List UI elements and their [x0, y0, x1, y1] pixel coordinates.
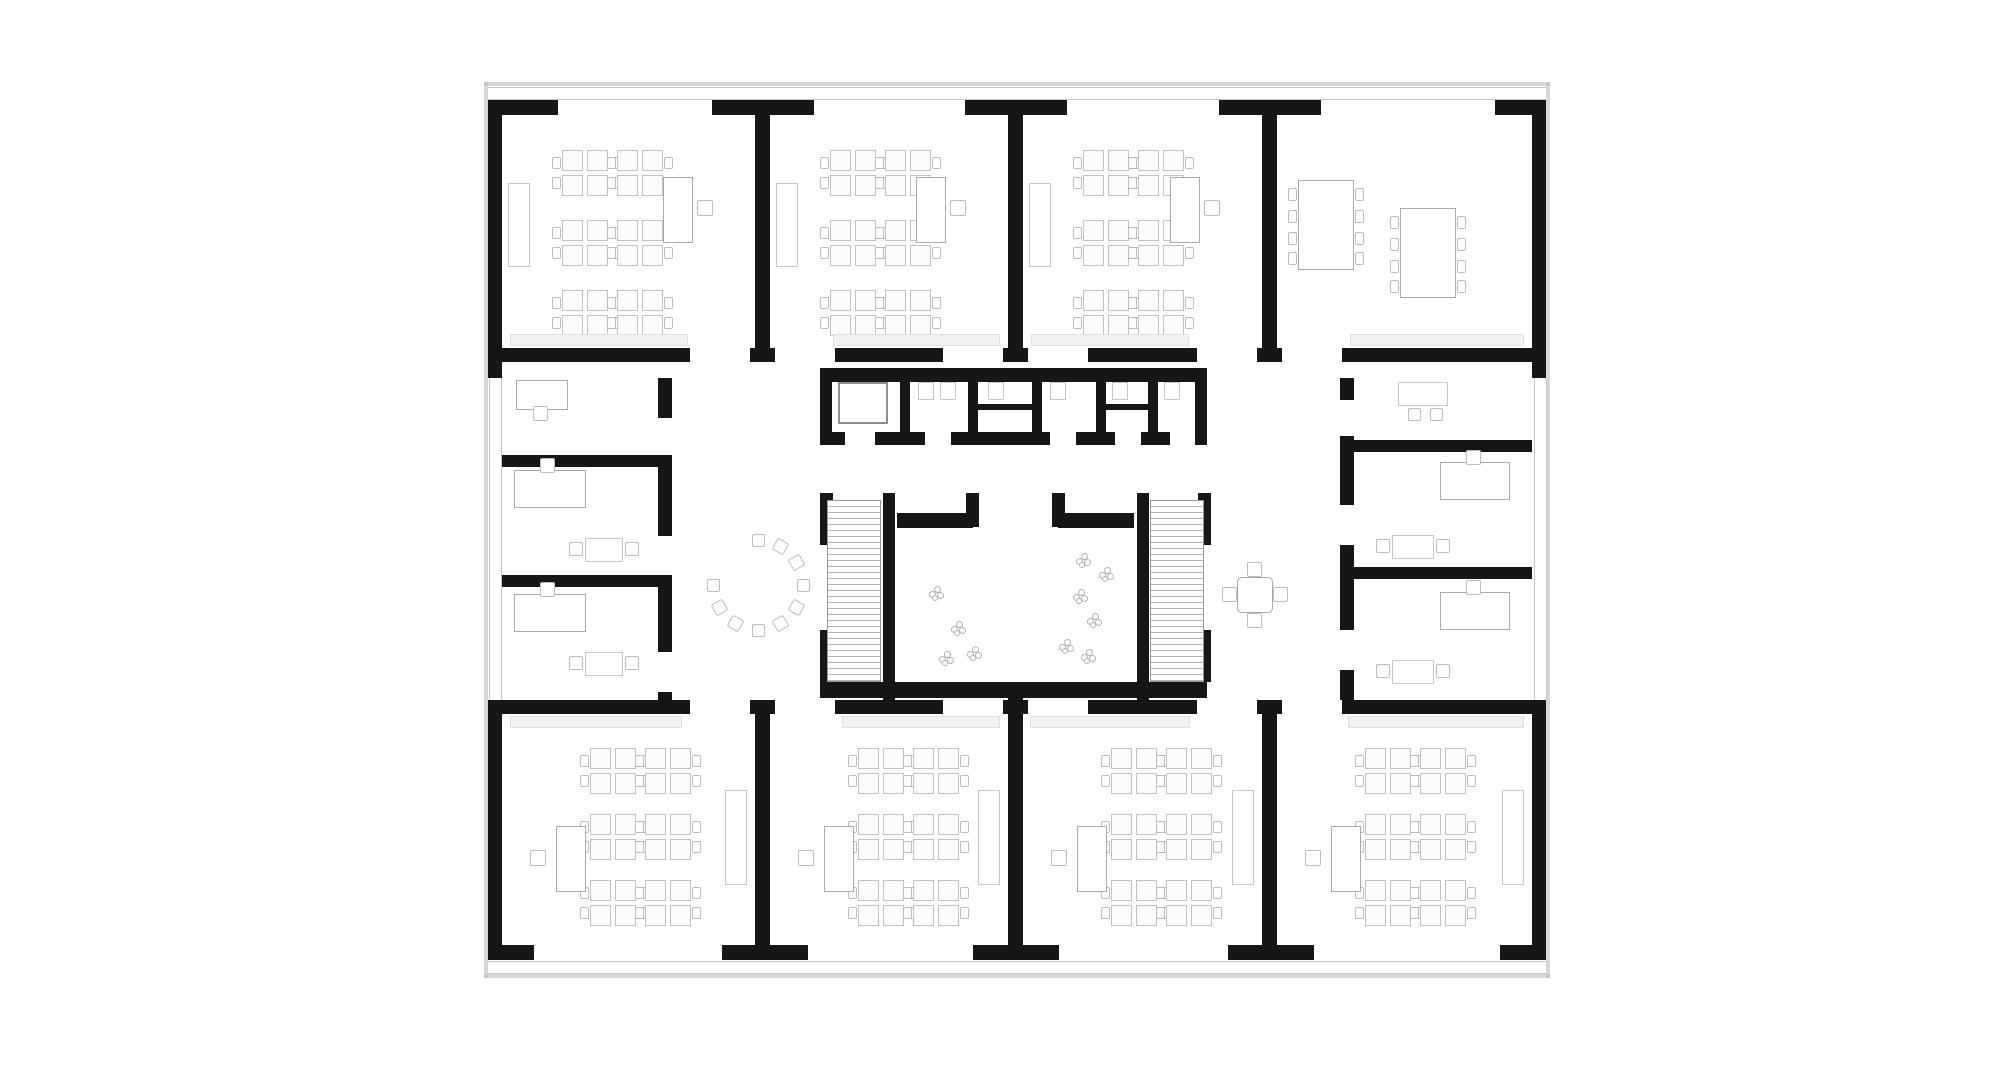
desk	[830, 175, 851, 196]
meeting-table	[585, 538, 623, 562]
desk	[855, 220, 876, 241]
arc-chair	[752, 624, 765, 637]
wall	[1003, 348, 1028, 362]
desk	[1420, 880, 1441, 901]
wall	[883, 493, 895, 700]
cabinet	[725, 790, 747, 885]
wall	[875, 432, 925, 445]
desk-cluster	[590, 748, 636, 794]
desk	[562, 150, 583, 171]
chair	[1467, 841, 1476, 853]
chair	[903, 841, 912, 853]
desk	[910, 315, 931, 336]
wall	[1096, 368, 1106, 432]
desk	[1111, 839, 1132, 860]
desk	[1108, 150, 1129, 171]
desk	[1163, 315, 1184, 336]
desk	[615, 748, 636, 769]
plant-leaf	[1067, 645, 1074, 652]
wall	[750, 348, 775, 362]
chair	[1185, 317, 1194, 329]
desk	[1083, 220, 1104, 241]
desk-cluster	[1083, 150, 1129, 196]
wall	[1262, 100, 1277, 362]
chair	[960, 775, 969, 787]
desk	[590, 748, 611, 769]
arc-chair	[788, 554, 806, 572]
chair	[1467, 887, 1476, 899]
cabinet	[1502, 790, 1524, 885]
arc-chair	[772, 537, 790, 555]
desk	[1136, 814, 1157, 835]
cabinet	[978, 790, 1000, 885]
staff-table	[1288, 180, 1364, 270]
desk	[642, 175, 663, 196]
desk-cluster	[562, 290, 608, 336]
chair	[1073, 157, 1082, 169]
teacher-desk	[1331, 826, 1361, 892]
desk	[645, 773, 666, 794]
desk	[615, 839, 636, 860]
desk	[1191, 748, 1212, 769]
desk	[1390, 748, 1411, 769]
desk	[1138, 175, 1159, 196]
chair	[580, 775, 589, 787]
wall	[1148, 368, 1158, 432]
desk	[830, 245, 851, 266]
desk	[883, 880, 904, 901]
desk	[587, 150, 608, 171]
desk	[645, 748, 666, 769]
desk	[1365, 814, 1386, 835]
desk	[1083, 315, 1104, 336]
desk	[670, 905, 691, 926]
chair	[607, 297, 616, 309]
plant-leaf	[1095, 619, 1102, 626]
desk	[883, 814, 904, 835]
wall	[722, 945, 808, 960]
chair	[960, 907, 969, 919]
chair	[848, 775, 857, 787]
chair	[1467, 821, 1476, 833]
arc-chair	[707, 579, 720, 592]
chair	[552, 177, 561, 189]
chair	[1156, 907, 1165, 919]
chair	[1410, 907, 1419, 919]
desk-cluster	[617, 290, 663, 336]
desk	[1083, 245, 1104, 266]
chair	[820, 247, 829, 259]
desk	[1166, 814, 1187, 835]
wall	[1342, 348, 1532, 362]
desk	[1365, 905, 1386, 926]
desk	[1108, 290, 1129, 311]
chair	[1073, 297, 1082, 309]
office-desk	[514, 594, 586, 632]
cabinet	[1029, 183, 1051, 267]
desk	[1108, 175, 1129, 196]
plant-leaf	[947, 657, 954, 664]
plan-shadow	[484, 82, 1550, 86]
teacher-desk	[556, 826, 586, 892]
plant-leaf	[1081, 595, 1088, 602]
desk	[885, 150, 906, 171]
desk-cluster	[858, 880, 904, 926]
chair	[697, 200, 713, 216]
chair	[692, 887, 701, 899]
desk	[938, 839, 959, 860]
desk-cluster	[830, 220, 876, 266]
wall	[1088, 348, 1197, 362]
wall	[1342, 700, 1532, 714]
desk	[617, 150, 638, 171]
desk	[670, 814, 691, 835]
wall	[750, 700, 775, 714]
desk	[855, 150, 876, 171]
plant	[1086, 612, 1102, 628]
wall	[978, 404, 1032, 410]
desk	[1390, 773, 1411, 794]
chair	[580, 907, 589, 919]
desk-cluster	[1166, 814, 1212, 860]
staff-table	[1390, 208, 1466, 298]
chair	[1467, 907, 1476, 919]
arc-chair	[752, 534, 765, 547]
desk	[938, 748, 959, 769]
desk	[1365, 839, 1386, 860]
chair	[820, 177, 829, 189]
chair	[1410, 841, 1419, 853]
wall	[1340, 670, 1354, 700]
chair	[692, 907, 701, 919]
wall	[1088, 700, 1197, 714]
desk	[913, 905, 934, 926]
chair	[820, 297, 829, 309]
desk	[1136, 773, 1157, 794]
chair	[1466, 450, 1481, 465]
chair	[1410, 821, 1419, 833]
plant	[1075, 552, 1091, 568]
chair	[607, 247, 616, 259]
chair	[960, 755, 969, 767]
desk	[645, 814, 666, 835]
chair	[903, 887, 912, 899]
desk	[1390, 814, 1411, 835]
chair	[1390, 216, 1399, 229]
window-sill	[833, 334, 1000, 346]
chair	[1101, 775, 1110, 787]
chair	[1073, 227, 1082, 239]
chair	[1376, 539, 1390, 553]
chair	[1204, 200, 1220, 216]
chair	[960, 821, 969, 833]
desk	[885, 315, 906, 336]
desk-cluster	[645, 748, 691, 794]
window-strip	[1534, 378, 1547, 700]
plant-leaf	[1079, 562, 1085, 568]
wall	[502, 455, 672, 467]
desk-cluster	[645, 880, 691, 926]
desk	[1420, 839, 1441, 860]
chair	[1355, 907, 1364, 919]
chair	[903, 907, 912, 919]
chair	[635, 755, 644, 767]
wall	[968, 368, 978, 432]
desk	[1420, 773, 1441, 794]
office-desk	[1440, 462, 1510, 500]
wall	[502, 575, 672, 587]
chair	[1410, 887, 1419, 899]
staircase	[1150, 500, 1204, 682]
chair	[903, 821, 912, 833]
chair	[1355, 775, 1364, 787]
desk	[1083, 150, 1104, 171]
chair	[1156, 755, 1165, 767]
desk	[587, 175, 608, 196]
wall	[658, 458, 672, 536]
desk	[885, 290, 906, 311]
wall	[658, 576, 672, 652]
desk-cluster	[885, 290, 931, 336]
chair	[569, 656, 583, 670]
wall	[502, 700, 690, 714]
desk	[1136, 839, 1157, 860]
arc-chair	[727, 615, 745, 633]
wall	[1137, 493, 1149, 700]
plant-leaf	[954, 630, 960, 636]
chair	[875, 317, 884, 329]
wall	[1008, 682, 1023, 714]
wall	[1058, 513, 1134, 528]
meeting-table	[1398, 382, 1448, 406]
chair	[1436, 539, 1450, 553]
chair	[1213, 841, 1222, 853]
chair	[1436, 664, 1450, 678]
desk	[645, 905, 666, 926]
plant-leaf	[932, 595, 938, 601]
chair	[540, 458, 555, 473]
desk	[830, 150, 851, 171]
chair	[1288, 252, 1297, 265]
desk	[615, 814, 636, 835]
desk	[562, 290, 583, 311]
desk	[590, 905, 611, 926]
desk	[617, 175, 638, 196]
teacher-desk	[663, 177, 693, 243]
chair	[533, 406, 548, 421]
chair	[625, 656, 639, 670]
desk	[1191, 880, 1212, 901]
chair	[1457, 238, 1466, 251]
chair	[530, 850, 546, 866]
chair	[875, 177, 884, 189]
chair	[692, 775, 701, 787]
chair	[1156, 841, 1165, 853]
desk	[670, 773, 691, 794]
desk	[590, 880, 611, 901]
chair	[820, 157, 829, 169]
desk	[1166, 748, 1187, 769]
chair	[664, 157, 673, 169]
desk	[855, 315, 876, 336]
wall	[488, 700, 502, 960]
desk	[645, 880, 666, 901]
wall	[835, 348, 943, 362]
desk	[910, 290, 931, 311]
desk-cluster	[562, 220, 608, 266]
chair	[569, 542, 583, 556]
wall	[1340, 567, 1532, 579]
window-strip	[488, 87, 1546, 100]
desk	[858, 773, 879, 794]
desk	[1191, 773, 1212, 794]
wall	[1340, 545, 1354, 630]
chair	[692, 821, 701, 833]
chair	[1156, 775, 1165, 787]
desk	[1136, 748, 1157, 769]
chair	[1410, 775, 1419, 787]
desk-cluster	[858, 748, 904, 794]
chair	[552, 247, 561, 259]
desk	[858, 905, 879, 926]
desk-cluster	[830, 290, 876, 336]
desk-cluster	[617, 150, 663, 196]
chair	[552, 317, 561, 329]
desk	[1420, 905, 1441, 926]
chair	[1185, 247, 1194, 259]
plant	[950, 620, 966, 636]
chair	[607, 317, 616, 329]
desk	[938, 880, 959, 901]
desk-cluster	[913, 880, 959, 926]
desk	[1166, 773, 1187, 794]
desk	[645, 839, 666, 860]
desk	[642, 150, 663, 171]
chair	[1073, 247, 1082, 259]
plant-leaf	[1062, 648, 1068, 654]
chair	[798, 850, 814, 866]
chair	[1101, 907, 1110, 919]
desk-cluster	[1420, 880, 1466, 926]
table	[1237, 577, 1273, 613]
arc-chair	[788, 599, 806, 617]
desk	[1138, 150, 1159, 171]
chair	[1247, 562, 1262, 577]
wc-fixture	[940, 382, 956, 400]
wc-fixture	[988, 382, 1004, 400]
desk	[1420, 814, 1441, 835]
plant-leaf	[937, 592, 944, 599]
chair	[875, 297, 884, 309]
chair	[932, 247, 941, 259]
wall	[1532, 700, 1546, 960]
wall	[1532, 100, 1546, 378]
wall	[1340, 378, 1354, 400]
chair	[552, 157, 561, 169]
chair	[540, 582, 555, 597]
desk	[1166, 880, 1187, 901]
plant-leaf	[942, 660, 948, 666]
chair	[664, 317, 673, 329]
chair	[875, 227, 884, 239]
desk	[1111, 880, 1132, 901]
desk	[587, 245, 608, 266]
desk	[1420, 748, 1441, 769]
teacher-desk	[1077, 826, 1107, 892]
desk	[913, 880, 934, 901]
arc-chair	[710, 599, 728, 617]
desk	[590, 773, 611, 794]
wall	[1257, 348, 1282, 362]
desk	[615, 880, 636, 901]
wc-fixture	[1112, 382, 1128, 400]
wall	[755, 100, 770, 362]
desk	[617, 290, 638, 311]
desk-cluster	[1083, 290, 1129, 336]
chair	[903, 775, 912, 787]
desk	[830, 290, 851, 311]
plan-shadow	[484, 974, 1550, 978]
wall	[1106, 404, 1148, 410]
desk	[1445, 839, 1466, 860]
chair	[635, 907, 644, 919]
desk	[642, 245, 663, 266]
desk-cluster	[1083, 220, 1129, 266]
chair	[692, 755, 701, 767]
desk	[883, 839, 904, 860]
desk	[642, 220, 663, 241]
chair	[1213, 821, 1222, 833]
window-sill	[1348, 716, 1524, 728]
desk	[1191, 905, 1212, 926]
chair	[1457, 260, 1466, 273]
desk	[1111, 905, 1132, 926]
wall	[900, 368, 910, 432]
chair	[1467, 755, 1476, 767]
wall	[658, 692, 672, 700]
plant	[1058, 638, 1074, 654]
meeting-table	[1392, 660, 1434, 684]
chair	[1355, 188, 1364, 201]
chair	[1390, 238, 1399, 251]
wall	[951, 432, 1050, 445]
plant	[1072, 588, 1088, 604]
desk	[670, 748, 691, 769]
window-sill	[1030, 716, 1190, 728]
wall	[1340, 440, 1532, 452]
desk	[855, 290, 876, 311]
desk	[1191, 839, 1212, 860]
desk	[1163, 245, 1184, 266]
meeting-table	[585, 652, 623, 676]
chair	[635, 841, 644, 853]
desk	[1136, 880, 1157, 901]
desk	[1365, 748, 1386, 769]
desk	[910, 245, 931, 266]
chair	[635, 775, 644, 787]
chair	[932, 157, 941, 169]
teacher-desk	[916, 177, 946, 243]
wall	[1052, 493, 1065, 527]
elevator-car	[838, 382, 888, 424]
wall	[488, 100, 502, 378]
plant	[966, 645, 982, 661]
desk	[1390, 880, 1411, 901]
desk	[1365, 773, 1386, 794]
chair	[1073, 317, 1082, 329]
chair	[932, 317, 941, 329]
wall	[502, 348, 690, 362]
